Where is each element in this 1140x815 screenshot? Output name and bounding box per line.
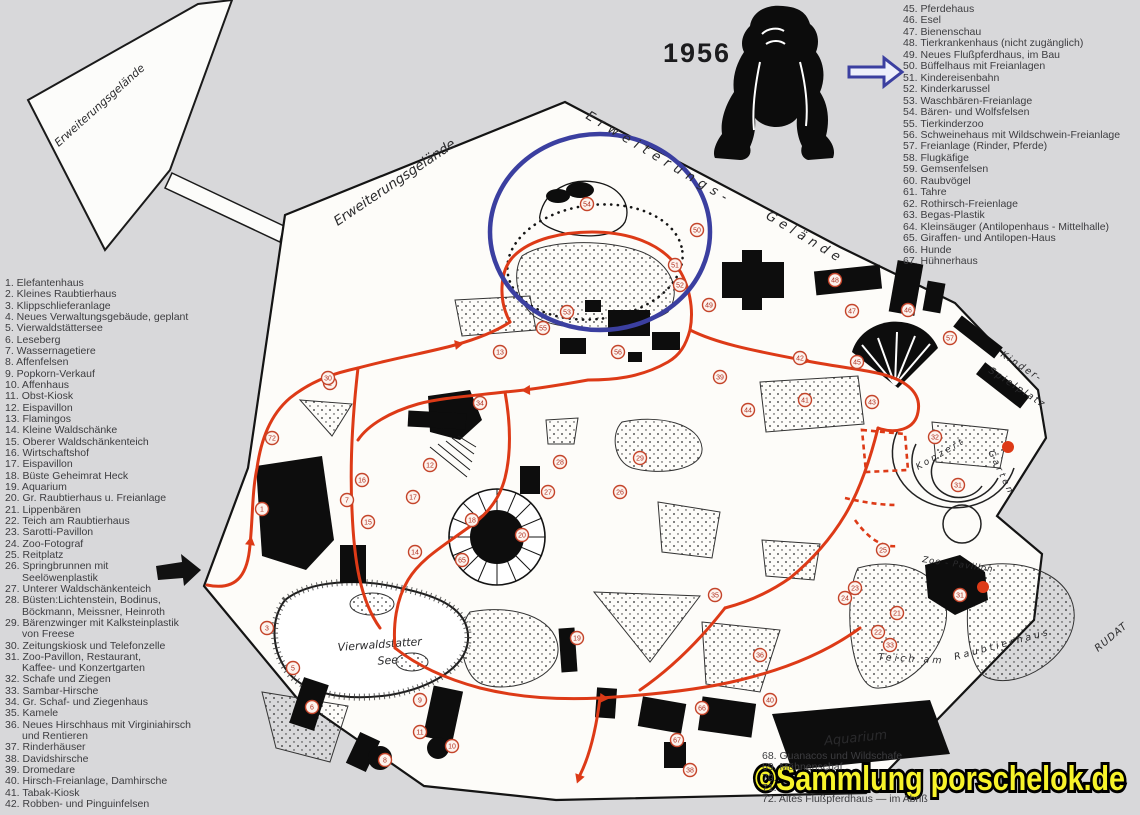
- svg-text:14: 14: [411, 550, 419, 557]
- map-marker: 33: [884, 639, 897, 652]
- map-marker: 3: [261, 622, 274, 635]
- svg-text:50: 50: [693, 228, 701, 235]
- map-marker: 5: [287, 662, 300, 675]
- map-marker: 41: [799, 394, 812, 407]
- svg-text:17: 17: [409, 495, 417, 502]
- map-marker: 51: [669, 259, 682, 272]
- svg-text:3: 3: [265, 626, 269, 633]
- map-marker: 8: [379, 754, 392, 767]
- legend-item: 67. Hühnerhaus: [903, 256, 1140, 267]
- legend-item: 69. Mähnenschaf: [762, 762, 1092, 773]
- map-marker: 25: [877, 544, 890, 557]
- map-marker: 39: [714, 371, 727, 384]
- expansion-parcel: Erweiterungsgelände: [28, 0, 284, 250]
- map-marker: 24: [839, 592, 852, 605]
- svg-text:38: 38: [686, 768, 694, 775]
- legend-item: 28. Büsten:Lichtenstein, Bodinus, Böckma…: [5, 595, 247, 618]
- map-marker: 6: [306, 701, 319, 714]
- svg-text:22: 22: [874, 630, 882, 637]
- legend-item: 31. Zoo-Pavillon, Restaurant, Kaffee- un…: [5, 652, 247, 675]
- svg-text:1: 1: [260, 507, 264, 514]
- map-marker: 46: [902, 304, 915, 317]
- map-marker: 18: [466, 514, 479, 527]
- svg-text:49: 49: [705, 303, 713, 310]
- legend-item: 14. Kleine Waldschänke: [5, 425, 247, 436]
- legend-item: 5. Vierwaldstättersee: [5, 323, 247, 334]
- svg-text:55: 55: [539, 326, 547, 333]
- legend-item: 29. Bärenzwinger mit Kalksteinplastik vo…: [5, 618, 247, 641]
- svg-text:31: 31: [956, 593, 964, 600]
- svg-text:19: 19: [573, 636, 581, 643]
- map-marker: 45: [851, 356, 864, 369]
- svg-text:7: 7: [345, 498, 349, 505]
- svg-text:27: 27: [544, 490, 552, 497]
- legend-right-list: 45. Pferdehaus46. Esel47. Bienenschau48.…: [903, 4, 1140, 267]
- svg-text:46: 46: [904, 308, 912, 315]
- map-marker: 44: [742, 404, 755, 417]
- svg-text:15: 15: [364, 520, 372, 527]
- svg-text:24: 24: [841, 596, 849, 603]
- legend-item: 36. Neues Hirschhaus mit Virginiahirsch …: [5, 720, 247, 743]
- svg-text:47: 47: [848, 309, 856, 316]
- map-marker: 50: [691, 224, 704, 237]
- map-marker: 12: [424, 459, 437, 472]
- map-marker: 56: [612, 346, 625, 359]
- svg-text:51: 51: [671, 263, 679, 270]
- map-marker: 72: [266, 432, 279, 445]
- map-marker: 54: [581, 198, 594, 211]
- map-marker: 57: [944, 332, 957, 345]
- map-marker: 49: [703, 299, 716, 312]
- svg-text:44: 44: [744, 408, 752, 415]
- map-marker: 34: [474, 397, 487, 410]
- svg-text:13: 13: [496, 350, 504, 357]
- round-predator-house: [449, 489, 545, 585]
- map-marker: 53: [561, 306, 574, 319]
- legend-item: 52. Kinderkarussel: [903, 84, 1140, 95]
- svg-text:34: 34: [476, 401, 484, 408]
- map-marker: 14: [409, 546, 422, 559]
- svg-text:39: 39: [716, 375, 724, 382]
- legend-item: 63. Begas-Plastik: [903, 210, 1140, 221]
- svg-text:57: 57: [946, 336, 954, 343]
- svg-text:66: 66: [698, 706, 706, 713]
- map-marker: 31: [954, 589, 967, 602]
- legend-item: 70.: [762, 773, 1092, 784]
- legend-item: 20. Gr. Raubtierhaus u. Freianlage: [5, 493, 247, 504]
- svg-text:53: 53: [563, 310, 571, 317]
- map-marker: 26: [614, 486, 627, 499]
- year-label: 1956: [663, 38, 731, 69]
- map-marker: 65: [456, 554, 469, 567]
- map-marker: 43: [866, 396, 879, 409]
- svg-text:29: 29: [636, 456, 644, 463]
- svg-text:25: 25: [879, 548, 887, 555]
- legend-item: 50. Büffelhaus mit Freianlagen: [903, 61, 1140, 72]
- map-marker: 31: [952, 479, 965, 492]
- legend-item: 2. Kleines Raubtierhaus: [5, 289, 247, 300]
- svg-text:52: 52: [676, 283, 684, 290]
- svg-text:41: 41: [801, 398, 809, 405]
- svg-text:36: 36: [756, 653, 764, 660]
- legend-item: 72. Altes Flußpferdhaus — im Abriß: [762, 794, 1092, 805]
- map-marker: 9: [414, 694, 427, 707]
- map-marker: 27: [542, 486, 555, 499]
- map-marker: 20: [516, 529, 529, 542]
- svg-text:28: 28: [556, 460, 564, 467]
- svg-text:42: 42: [796, 356, 804, 363]
- map-marker: 67: [671, 734, 684, 747]
- svg-text:30: 30: [324, 376, 332, 383]
- svg-text:45: 45: [853, 360, 861, 367]
- legend-item: 17. Eispavillon: [5, 459, 247, 470]
- map-marker: 23: [849, 582, 862, 595]
- legend-item: 8. Affenfelsen: [5, 357, 247, 368]
- svg-text:5: 5: [291, 666, 295, 673]
- map-marker: 16: [356, 474, 369, 487]
- svg-text:54: 54: [583, 202, 591, 209]
- lake-label-line2: See: [377, 653, 399, 667]
- scanned-zoo-map-page: Erweiterungsgelände Vierwaldstatter See: [0, 0, 1140, 815]
- cartographer-signature: RUDAT: [1093, 621, 1130, 655]
- map-marker: 10: [446, 740, 459, 753]
- map-marker: 55: [537, 322, 550, 335]
- svg-text:20: 20: [518, 533, 526, 540]
- map-marker: 32: [929, 431, 942, 444]
- map-marker: 17: [407, 491, 420, 504]
- legend-bottom-list: 68. Guanacos und Wildschafe69. Mähnensch…: [762, 751, 1092, 805]
- svg-text:8: 8: [383, 758, 387, 765]
- svg-text:48: 48: [831, 278, 839, 285]
- svg-text:23: 23: [851, 586, 859, 593]
- gorilla-silhouette: [714, 6, 834, 160]
- map-marker: 36: [754, 649, 767, 662]
- svg-text:11: 11: [416, 730, 423, 737]
- svg-text:31: 31: [954, 483, 962, 490]
- svg-text:16: 16: [358, 478, 366, 485]
- svg-text:9: 9: [418, 698, 422, 705]
- svg-text:10: 10: [448, 744, 456, 751]
- svg-text:6: 6: [310, 705, 314, 712]
- map-marker: 11: [414, 726, 427, 739]
- legend-item: 26. Springbrunnen mit Seelöwenplastik: [5, 561, 247, 584]
- legend-item: 23. Sarotti-Pavillon: [5, 527, 247, 538]
- map-marker: 22: [872, 626, 885, 639]
- legend-item: 42. Robben- und Pinguinfelsen: [5, 799, 247, 810]
- map-marker: 15: [362, 516, 375, 529]
- svg-text:12: 12: [426, 463, 434, 470]
- svg-text:65: 65: [458, 558, 466, 565]
- svg-text:67: 67: [673, 738, 681, 745]
- map-marker: 28: [554, 456, 567, 469]
- legend-item: 65. Giraffen- und Antilopen-Haus: [903, 233, 1140, 244]
- legend-item: 61. Tahre: [903, 187, 1140, 198]
- svg-text:43: 43: [868, 400, 876, 407]
- map-marker: 29: [634, 452, 647, 465]
- legend-item: 54. Bären- und Wolfsfelsen: [903, 107, 1140, 118]
- map-marker: 35: [709, 589, 722, 602]
- svg-text:26: 26: [616, 490, 624, 497]
- annotation-arrow-icon: [849, 58, 902, 86]
- map-marker: 7: [341, 494, 354, 507]
- map-marker: 42: [794, 352, 807, 365]
- svg-text:56: 56: [614, 350, 622, 357]
- map-marker: 13: [494, 346, 507, 359]
- map-marker: 19: [571, 632, 584, 645]
- map-marker: 52: [674, 279, 687, 292]
- svg-text:35: 35: [711, 593, 719, 600]
- svg-text:21: 21: [893, 611, 901, 618]
- map-marker: 47: [846, 305, 859, 318]
- map-marker: 48: [829, 274, 842, 287]
- map-marker: 40: [764, 694, 777, 707]
- map-marker: 30: [322, 372, 335, 385]
- map-marker: 38: [684, 764, 697, 777]
- svg-text:18: 18: [468, 518, 476, 525]
- legend-item: 11. Obst-Kiosk: [5, 391, 247, 402]
- map-marker: 21: [891, 607, 904, 620]
- legend-left-list: 1. Elefantenhaus2. Kleines Raubtierhaus3…: [5, 278, 247, 810]
- svg-text:33: 33: [886, 643, 894, 650]
- svg-text:72: 72: [268, 436, 276, 443]
- map-marker: 66: [696, 702, 709, 715]
- svg-text:32: 32: [931, 435, 939, 442]
- map-marker: 1: [256, 503, 269, 516]
- svg-text:40: 40: [766, 698, 774, 705]
